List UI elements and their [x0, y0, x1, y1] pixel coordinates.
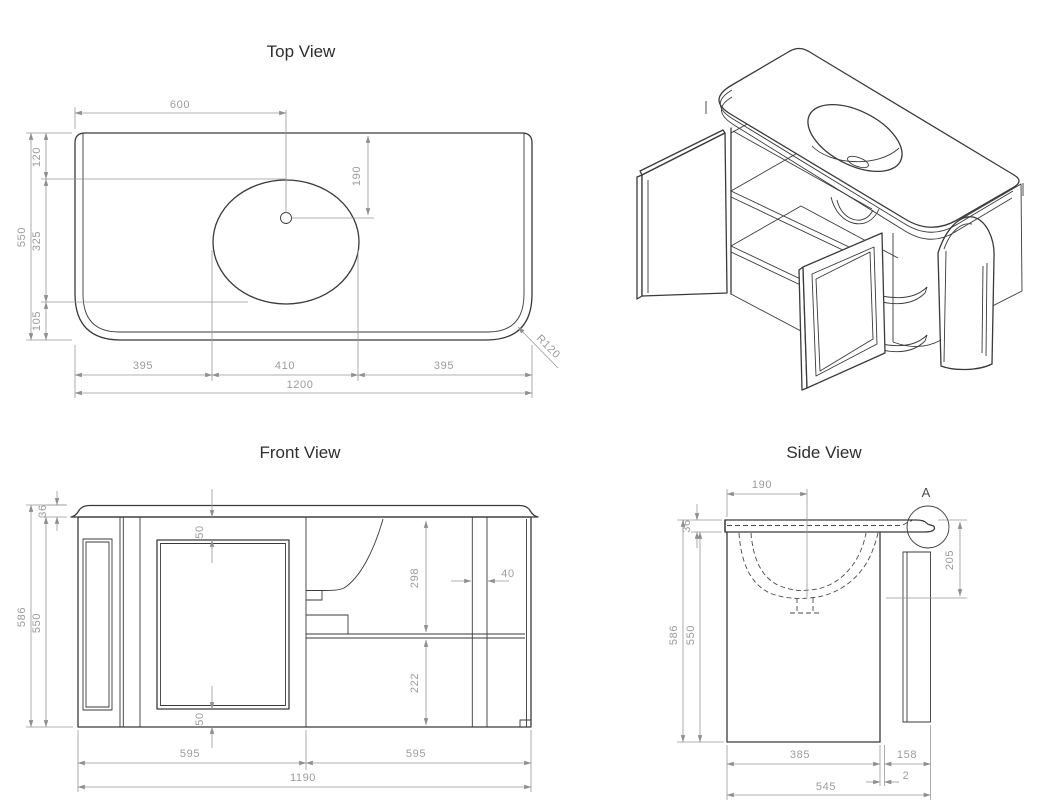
front-door-frame: [157, 540, 289, 709]
dim-395-left: 395: [133, 360, 153, 372]
iso-curved-door: [938, 217, 994, 370]
dim-40: 40: [501, 568, 514, 580]
front-counter-slab: [71, 506, 538, 518]
dim-595-right: 595: [406, 748, 426, 760]
dim-205: 205: [944, 550, 956, 570]
top-counter-outline: [75, 133, 532, 340]
front-view: Front View 36 586: [16, 443, 538, 792]
faucet-hole: [281, 213, 292, 224]
dim-325: 325: [31, 231, 43, 251]
dim-586-side: 586: [668, 625, 680, 645]
dim-50-bottom: 50: [194, 712, 206, 725]
dim-600: 600: [170, 99, 190, 111]
dim-545: 545: [816, 781, 836, 793]
side-view: Side View A 190 36 586: [668, 443, 967, 800]
dim-1190: 1190: [290, 772, 316, 784]
top-view-title: Top View: [267, 42, 336, 61]
dim-190-side: 190: [752, 479, 772, 491]
dim-120: 120: [31, 147, 43, 167]
vanity-technical-drawing: Top View 600 190 550 120 325 105 395: [0, 0, 1037, 811]
dim-1200: 1200: [287, 379, 314, 391]
isometric-view: [637, 49, 1023, 391]
dim-298: 298: [409, 568, 421, 588]
dim-550-side: 550: [685, 625, 697, 645]
detail-label-a: A: [922, 485, 931, 500]
dim-586: 586: [16, 607, 28, 627]
front-carcass: [78, 517, 531, 727]
iso-leaning-door: [799, 233, 885, 390]
drawing-canvas: Top View 600 190 550 120 325 105 395: [0, 0, 1037, 811]
dim-385: 385: [790, 749, 810, 761]
dim-222: 222: [409, 673, 421, 693]
dim-410: 410: [275, 360, 295, 372]
dim-550: 550: [31, 613, 43, 633]
dim-158: 158: [897, 749, 917, 761]
dim-2: 2: [903, 770, 910, 782]
dim-36: 36: [37, 504, 49, 517]
top-view: Top View 600 190 550 120 325 105 395: [16, 42, 563, 398]
dim-50-top: 50: [194, 525, 206, 538]
side-view-title: Side View: [786, 443, 862, 462]
dim-190: 190: [351, 166, 363, 186]
dim-105: 105: [31, 311, 43, 331]
dim-r120: R120: [534, 332, 563, 361]
front-view-title: Front View: [260, 443, 342, 462]
iso-left-door: [637, 130, 727, 299]
dim-550: 550: [16, 227, 28, 247]
side-basin-hidden: [739, 533, 878, 599]
dim-595-left: 595: [180, 748, 200, 760]
dim-395-right: 395: [434, 360, 454, 372]
side-counter-slab: [725, 520, 935, 532]
front-basin-profile: [322, 519, 383, 591]
